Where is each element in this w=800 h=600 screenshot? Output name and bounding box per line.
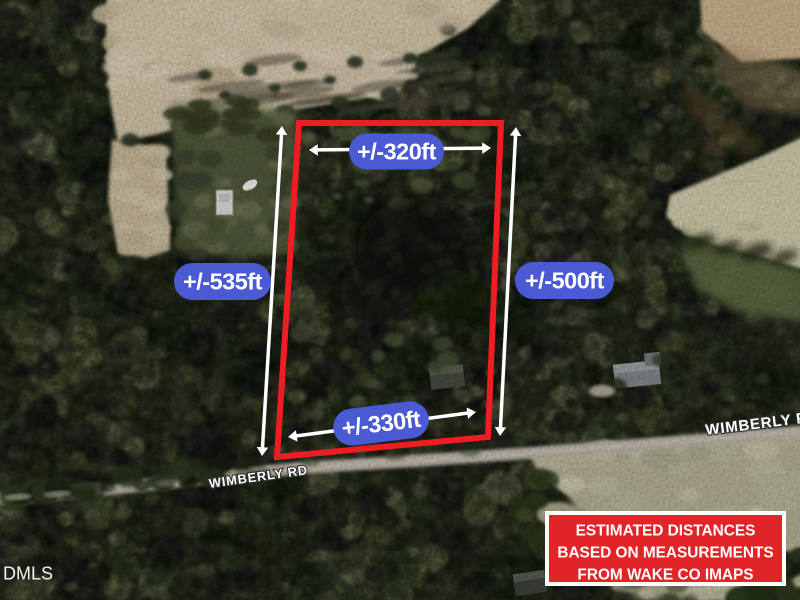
svg-text:FROM WAKE CO IMAPS: FROM WAKE CO IMAPS — [577, 567, 753, 584]
svg-text:+/-535ft: +/-535ft — [183, 269, 263, 295]
svg-text:+/-320ft: +/-320ft — [357, 139, 437, 165]
svg-text:+/-500ft: +/-500ft — [525, 268, 605, 294]
svg-text:BASED ON MEASUREMENTS: BASED ON MEASUREMENTS — [557, 545, 773, 562]
svg-text:ESTIMATED DISTANCES: ESTIMATED DISTANCES — [576, 523, 756, 540]
svg-text:DMLS: DMLS — [3, 564, 53, 584]
